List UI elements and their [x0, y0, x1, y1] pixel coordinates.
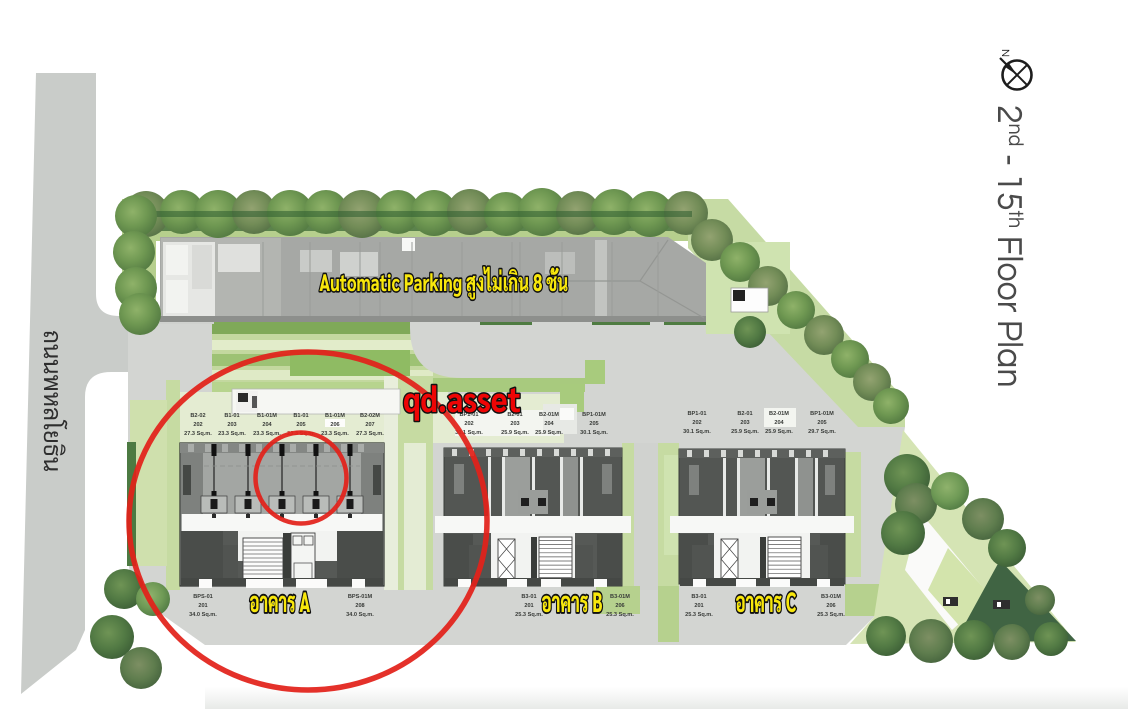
svg-text:27.3 Sq.m.: 27.3 Sq.m. — [184, 431, 212, 437]
svg-text:30.1 Sq.m.: 30.1 Sq.m. — [580, 430, 608, 436]
svg-text:29.7 Sq.m.: 29.7 Sq.m. — [808, 429, 836, 435]
svg-text:27.3 Sq.m.: 27.3 Sq.m. — [356, 431, 384, 437]
svg-text:34.0 Sq.m.: 34.0 Sq.m. — [189, 612, 217, 618]
svg-text:25.9 Sq.m.: 25.9 Sq.m. — [765, 429, 793, 435]
svg-text:25.3 Sq.m.: 25.3 Sq.m. — [515, 612, 543, 618]
svg-text:205: 205 — [296, 422, 305, 428]
svg-text:201: 201 — [694, 603, 703, 609]
svg-text:30.1 Sq.m.: 30.1 Sq.m. — [683, 429, 711, 435]
svg-text:23.3 Sq.m.: 23.3 Sq.m. — [253, 431, 281, 437]
svg-text:25.9 Sq.m.: 25.9 Sq.m. — [731, 429, 759, 435]
svg-text:204: 204 — [262, 422, 272, 428]
svg-text:BPS-01: BPS-01 — [193, 594, 213, 600]
svg-text:B2-01M: B2-01M — [769, 411, 789, 417]
svg-text:203: 203 — [227, 422, 236, 428]
svg-text:B3-01M: B3-01M — [821, 594, 841, 600]
svg-text:206: 206 — [826, 603, 835, 609]
svg-text:BP1-01: BP1-01 — [688, 411, 707, 417]
svg-text:23.3 Sq.m.: 23.3 Sq.m. — [321, 431, 349, 437]
svg-text:25.3 Sq.m.: 25.3 Sq.m. — [685, 612, 713, 618]
svg-text:201: 201 — [524, 603, 533, 609]
svg-text:34.0 Sq.m.: 34.0 Sq.m. — [346, 612, 374, 618]
svg-text:B3-01M: B3-01M — [610, 594, 630, 600]
svg-text:B2-02: B2-02 — [190, 413, 205, 419]
svg-text:202: 202 — [692, 420, 701, 426]
svg-text:205: 205 — [589, 421, 598, 427]
svg-text:B2-01: B2-01 — [737, 411, 752, 417]
svg-text:B3-01: B3-01 — [691, 594, 706, 600]
svg-text:B2-02M: B2-02M — [360, 413, 380, 419]
svg-text:B3-01: B3-01 — [521, 594, 536, 600]
svg-text:202: 202 — [464, 421, 473, 427]
svg-text:204: 204 — [774, 420, 784, 426]
svg-text:23.3 Sq.m.: 23.3 Sq.m. — [218, 431, 246, 437]
svg-text:25.9 Sq.m.: 25.9 Sq.m. — [501, 430, 529, 436]
svg-text:25.3 Sq.m.: 25.3 Sq.m. — [817, 612, 845, 618]
svg-text:206: 206 — [615, 603, 624, 609]
svg-text:25.9 Sq.m.: 25.9 Sq.m. — [535, 430, 563, 436]
svg-text:202: 202 — [193, 422, 202, 428]
svg-text:B2-01M: B2-01M — [539, 412, 559, 418]
svg-text:BP1-01M: BP1-01M — [810, 411, 834, 417]
svg-text:B1-01: B1-01 — [224, 413, 239, 419]
svg-text:BP1-01M: BP1-01M — [582, 412, 606, 418]
svg-text:B1-01: B1-01 — [293, 413, 308, 419]
svg-text:201: 201 — [198, 603, 207, 609]
svg-text:203: 203 — [740, 420, 749, 426]
svg-text:206: 206 — [330, 422, 339, 428]
svg-text:204: 204 — [544, 421, 554, 427]
svg-text:B1-01M: B1-01M — [325, 413, 345, 419]
svg-text:208: 208 — [355, 603, 364, 609]
svg-text:207: 207 — [365, 422, 374, 428]
svg-text:203: 203 — [510, 421, 519, 427]
svg-text:25.3 Sq.m.: 25.3 Sq.m. — [606, 612, 634, 618]
svg-text:205: 205 — [817, 420, 826, 426]
svg-text:B1-01M: B1-01M — [257, 413, 277, 419]
svg-text:BPS-01M: BPS-01M — [348, 594, 373, 600]
